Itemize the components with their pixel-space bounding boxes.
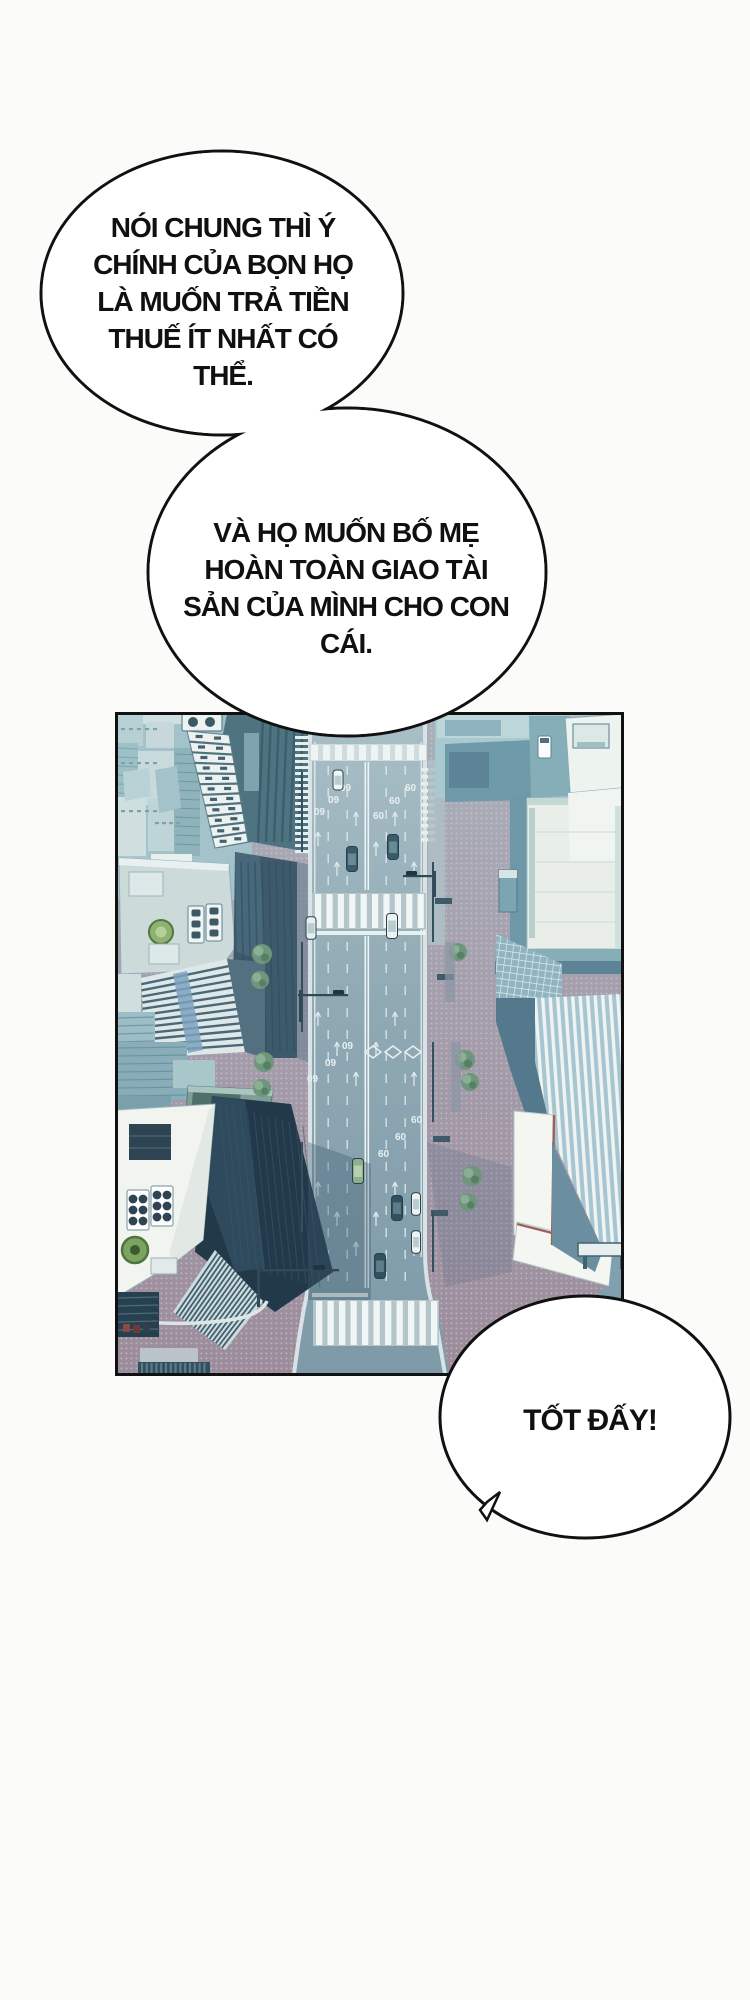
svg-text:CHÍNH CỦA BỌN HỌ: CHÍNH CỦA BỌN HỌ — [93, 248, 353, 280]
svg-text:60: 60 — [373, 811, 385, 822]
svg-text:SẢN CỦA MÌNH CHO CON: SẢN CỦA MÌNH CHO CON — [183, 590, 509, 622]
svg-text:60: 60 — [341, 1039, 353, 1050]
svg-text:THỂ.: THỂ. — [193, 360, 253, 391]
svg-text:TỐT ĐẤY!: TỐT ĐẤY! — [523, 1403, 657, 1437]
svg-text:60: 60 — [378, 1149, 390, 1160]
svg-text:HOÀN TOÀN GIAO TÀI: HOÀN TOÀN GIAO TÀI — [204, 554, 487, 585]
svg-text:60: 60 — [395, 1132, 407, 1143]
svg-text:60: 60 — [313, 805, 325, 816]
svg-text:NÓI CHUNG THÌ Ý: NÓI CHUNG THÌ Ý — [111, 212, 337, 243]
svg-text:CÁI.: CÁI. — [320, 628, 372, 659]
svg-text:60: 60 — [411, 1115, 423, 1126]
svg-text:60: 60 — [306, 1072, 318, 1083]
svg-text:LÀ MUỐN TRẢ TIỀN: LÀ MUỐN TRẢ TIỀN — [97, 285, 349, 317]
svg-text:VÀ HỌ MUỐN BỐ MẸ: VÀ HỌ MUỐN BỐ MẸ — [213, 516, 479, 548]
svg-text:THUẾ ÍT NHẤT CÓ: THUẾ ÍT NHẤT CÓ — [108, 323, 337, 354]
svg-text:60: 60 — [324, 1056, 336, 1067]
